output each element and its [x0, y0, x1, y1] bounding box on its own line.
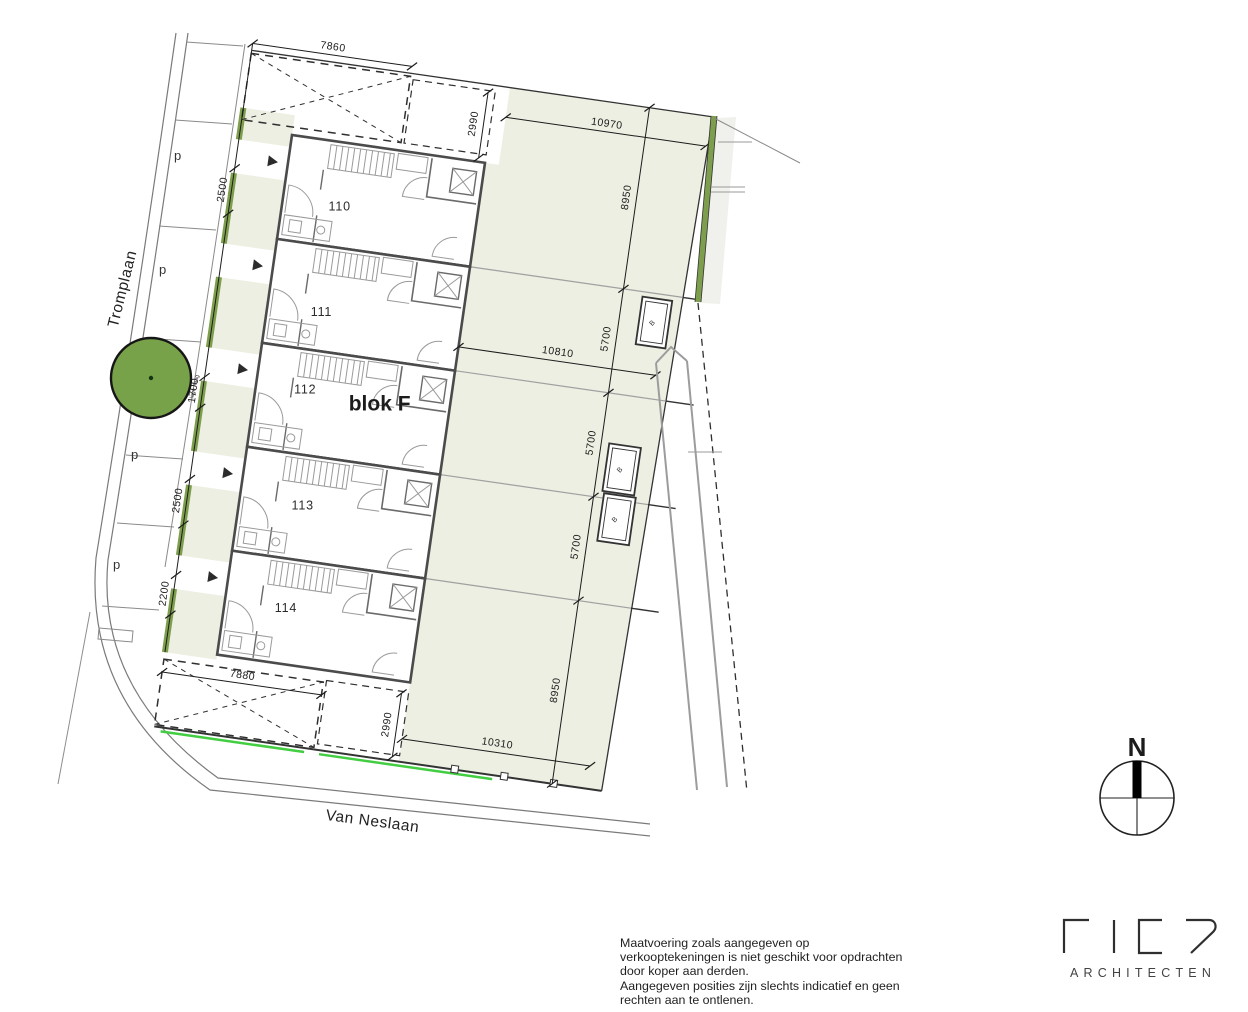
disclaimer-line-3: door koper aan derden. [620, 964, 902, 978]
unit-label-113: 113 [292, 498, 314, 512]
street-label-van-neslaan: Van Neslaan [325, 807, 421, 836]
disclaimer-line-4: Aangegeven posities zijn slechts indicat… [620, 979, 902, 993]
dimension-label-7880: 7880 [229, 668, 256, 683]
disclaimer-line-5: rechten aan te ontlenen. [620, 993, 902, 1007]
tree [111, 338, 191, 418]
plot-top-boundary [252, 50, 713, 116]
north-arrow: N [1100, 732, 1174, 835]
disclaimer-line-1: Maatvoering zoals aangegeven op [620, 936, 902, 950]
logo-letter-e [1139, 920, 1162, 953]
north-label: N [1128, 732, 1147, 762]
road-side-line [58, 612, 90, 784]
parking-label: p [113, 557, 120, 572]
unit-label-110: 110 [329, 200, 351, 214]
disclaimer-block: Maatvoering zoals aangegeven op verkoopt… [620, 936, 902, 1007]
dimension-label-7860: 7860 [320, 39, 347, 54]
logo-fier-glyphs [1064, 920, 1216, 953]
unit-label-111: 111 [311, 305, 332, 319]
disclaimer-line-2: verkooptekeningen is niet geschikt voor … [620, 950, 902, 964]
parking-end-rect [98, 628, 133, 642]
site-plan-svg: p p p p [0, 0, 1248, 1012]
dimension-label-2990-top: 2990 [466, 110, 481, 137]
logo-architecten: ARCHITECTEN [1070, 966, 1216, 980]
street-label-tromplaan: Tromplaan [105, 249, 141, 330]
rear-path-outline [656, 347, 727, 790]
unit-label-112: 112 [294, 383, 316, 397]
parking-label: p [159, 262, 166, 277]
logo-fier: ARCHITECTEN [1064, 920, 1216, 980]
parking-label: p [174, 148, 181, 163]
logo-letter-r [1186, 920, 1216, 953]
dimension-label-2990-bottom: 2990 [379, 711, 394, 738]
block-label: blok F [349, 392, 411, 415]
logo-letter-f [1064, 920, 1089, 953]
parking-label: p [131, 447, 138, 462]
unit-label-114: 114 [275, 601, 297, 615]
block-f-group: B B B [139, 27, 740, 800]
site-plan-page: p p p p [0, 0, 1248, 1012]
